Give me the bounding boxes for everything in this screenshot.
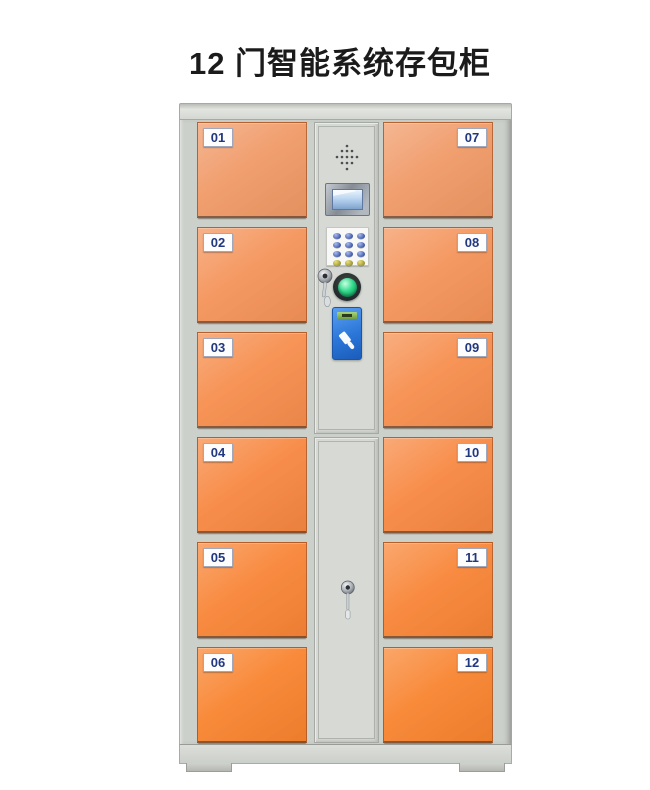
door-number-label: 11 <box>457 548 487 567</box>
green-unlock-button <box>333 273 361 301</box>
door-number-label: 04 <box>203 443 233 462</box>
door-number-label: 07 <box>457 128 487 147</box>
keypad-button <box>345 251 353 257</box>
service-door <box>314 437 379 743</box>
keypad-button <box>333 242 341 248</box>
door-number-label: 03 <box>203 338 233 357</box>
service-door-key-lock-icon <box>339 580 355 628</box>
speaker-grill-icon <box>332 143 362 175</box>
control-panel <box>314 122 379 434</box>
lcd-display <box>325 183 370 216</box>
door-number-label: 01 <box>203 128 233 147</box>
locker-door: 06 <box>197 647 307 743</box>
locker-cabinet: 01 02 03 04 05 06 07 08 09 10 11 <box>179 103 512 772</box>
door-number-label: 02 <box>203 233 233 252</box>
base-plinth <box>179 744 512 764</box>
door-number-label: 12 <box>457 653 487 672</box>
locker-door: 05 <box>197 542 307 638</box>
locker-door: 12 <box>383 647 493 743</box>
keypad-button <box>345 233 353 239</box>
locker-door: 07 <box>383 122 493 218</box>
keypad-button <box>357 233 365 239</box>
locker-door: 09 <box>383 332 493 428</box>
cabinet-foot <box>459 763 505 772</box>
lcd-glare <box>332 189 356 197</box>
key-lock-icon <box>317 268 335 312</box>
locker-door: 03 <box>197 332 307 428</box>
door-number-label: 09 <box>457 338 487 357</box>
green-button-face <box>338 278 357 297</box>
keypad-button <box>345 260 353 266</box>
lcd-screen <box>332 189 363 210</box>
door-number-label: 08 <box>457 233 487 252</box>
card-reader <box>332 307 362 360</box>
locker-door: 02 <box>197 227 307 323</box>
door-number-label: 10 <box>457 443 487 462</box>
cabinet-body: 01 02 03 04 05 06 07 08 09 10 11 <box>179 120 512 744</box>
numeric-keypad <box>326 227 369 266</box>
door-number-label: 05 <box>203 548 233 567</box>
keypad-button <box>333 233 341 239</box>
hand-card-icon <box>337 330 357 354</box>
locker-door: 11 <box>383 542 493 638</box>
cabinet-foot <box>186 763 232 772</box>
product-image: 12 门智能系统存包柜 01 02 03 04 05 06 07 08 <box>0 0 650 790</box>
keypad-button <box>357 251 365 257</box>
keypad-button <box>333 251 341 257</box>
door-number-label: 06 <box>203 653 233 672</box>
card-reader-display <box>337 312 357 319</box>
page-title: 12 门智能系统存包柜 <box>15 38 650 83</box>
locker-door: 10 <box>383 437 493 533</box>
locker-door: 04 <box>197 437 307 533</box>
cabinet-top-cap <box>179 103 512 120</box>
keypad-button <box>345 242 353 248</box>
locker-door: 08 <box>383 227 493 323</box>
keypad-button <box>333 260 341 266</box>
locker-door: 01 <box>197 122 307 218</box>
keypad-button <box>357 260 365 266</box>
keypad-button <box>357 242 365 248</box>
